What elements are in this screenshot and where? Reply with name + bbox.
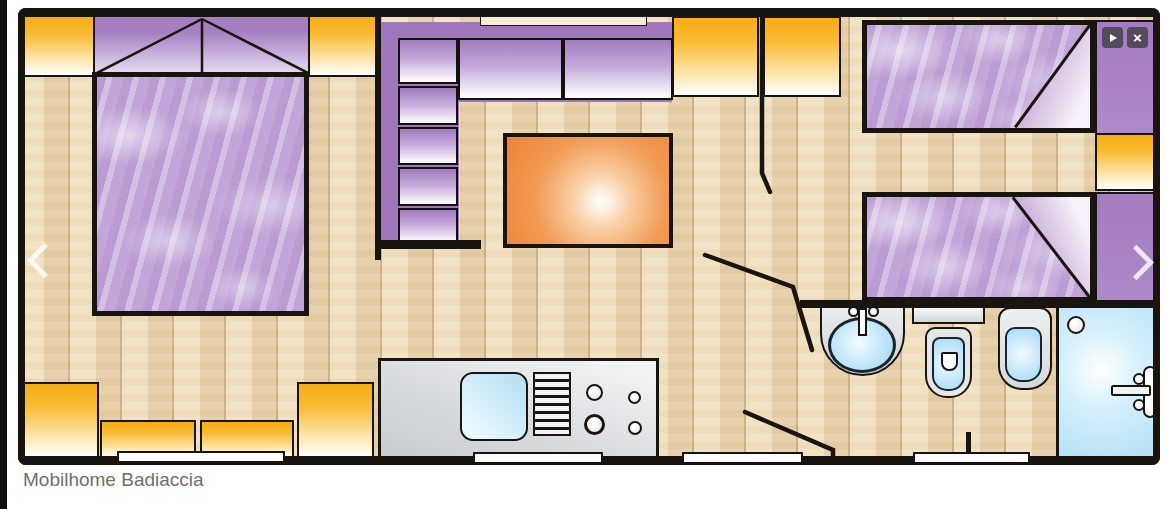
window — [913, 452, 1030, 464]
cabinet — [22, 382, 99, 458]
cabinet-door — [398, 127, 458, 165]
wardrobe — [308, 15, 380, 77]
dining-table — [503, 133, 673, 248]
cabinet — [1095, 133, 1160, 191]
wall — [18, 8, 25, 465]
washbasin-unit — [820, 303, 905, 376]
window — [682, 452, 803, 464]
hob-burner — [584, 414, 605, 435]
wardrobe — [1095, 192, 1160, 306]
cabinet-door — [398, 167, 458, 206]
kitchen-sink — [460, 372, 528, 441]
hob-burner — [628, 421, 642, 435]
shower-drain — [1067, 316, 1085, 334]
hob-burner — [586, 384, 603, 401]
cabinet-door — [563, 38, 673, 100]
counter-end-panel — [377, 240, 481, 249]
shower-knob — [1133, 399, 1145, 411]
image-caption: Mobilhome Badiaccia — [23, 469, 204, 491]
cabinet-door — [398, 208, 458, 244]
bidet-bowl — [1005, 327, 1042, 382]
cabinet — [672, 16, 759, 97]
window — [117, 451, 285, 463]
floorplan-image: × — [18, 8, 1160, 465]
window — [480, 16, 647, 26]
toilet-bowl — [925, 327, 972, 398]
close-button[interactable]: × — [1127, 27, 1148, 48]
cabinet-door — [398, 38, 458, 84]
play-icon — [1110, 34, 1117, 42]
sink-drainer — [533, 372, 571, 436]
bed-headboard — [93, 15, 312, 77]
shower-cubicle — [1056, 303, 1156, 460]
shower-arm — [1111, 385, 1151, 396]
gallery-screen: × Mobilhome Badiaccia — [0, 0, 1166, 509]
play-button[interactable] — [1102, 27, 1123, 48]
cabinet — [297, 382, 374, 458]
single-bed — [862, 192, 1095, 302]
bidet — [998, 307, 1052, 390]
wall — [800, 300, 1160, 308]
shower-knob — [1133, 373, 1145, 385]
wall — [1153, 8, 1160, 465]
close-icon: × — [1133, 29, 1142, 46]
cabinet-door — [398, 86, 458, 125]
double-bed — [92, 72, 309, 316]
kitchen-counter — [378, 358, 659, 461]
cabinet — [763, 16, 841, 97]
chevron-left-icon[interactable] — [27, 243, 62, 278]
toilet-drain — [941, 352, 958, 371]
window — [473, 452, 603, 464]
toilet-bowl-water — [932, 337, 965, 391]
wall — [375, 15, 381, 260]
page-edge-strip — [0, 0, 7, 509]
hob-burner — [628, 391, 641, 404]
cabinet-door — [458, 38, 563, 100]
single-bed — [862, 20, 1095, 133]
tap-spout — [858, 308, 867, 336]
wardrobe — [22, 15, 97, 77]
